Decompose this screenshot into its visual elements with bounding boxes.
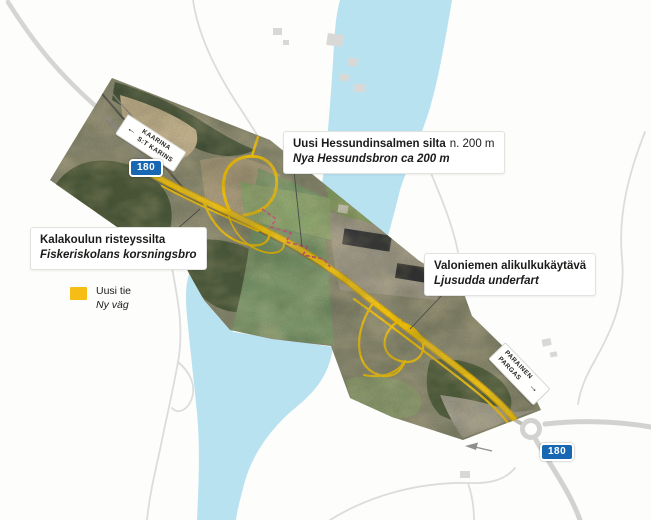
bridge-label-length: n. 200 m [450,138,495,150]
legend-label-fi: Uusi tie [96,285,131,299]
legend-label-sv: Ny väg [96,299,131,313]
underpass-label-sv: Ljusudda underfart [434,274,586,289]
crossing-label-sv: Fiskeriskolans korsningsbro [40,248,197,263]
crossing-label-fi: Kalakoulun risteyssilta [40,233,197,248]
underpass-label: Valoniemen alikulkukäytävä Ljusudda unde… [424,253,596,296]
route-180-badge-north: 180 [129,159,163,177]
bridge-label: Uusi Hessundinsalmen siltan. 200 m Nya H… [283,131,505,174]
bridge-label-fi: Uusi Hessundinsalmen silta [293,138,446,150]
underpass-label-fi: Valoniemen alikulkukäytävä [434,259,586,274]
map-canvas: Uusi Hessundinsalmen siltan. 200 m Nya H… [0,0,651,520]
new-road-swatch [70,287,87,300]
roundabout [523,421,540,438]
route-180-badge-south: 180 [540,443,574,461]
legend: Uusi tie Ny väg [70,285,131,312]
right-arrow-icon: → [525,380,542,397]
bridge-label-sv: Nya Hessundsbron ca 200 m [293,152,495,167]
crossing-bridge-label: Kalakoulun risteyssilta Fiskeriskolans k… [30,227,207,270]
